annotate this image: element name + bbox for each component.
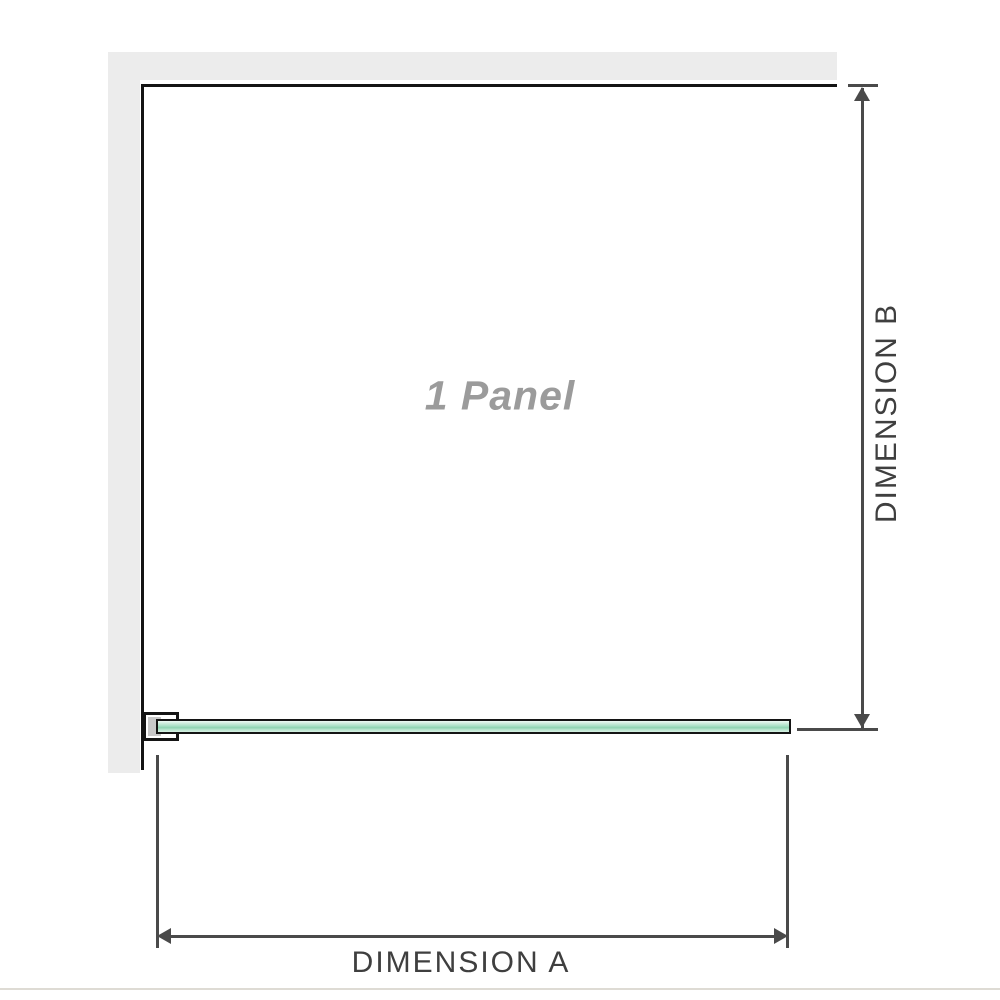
dimension-a-label: DIMENSION A <box>352 946 571 980</box>
glass-panel-top-view <box>156 719 791 734</box>
dimension-a-extension-left <box>156 755 159 948</box>
diagram-canvas: 1 Panel DIMENSION B DIMENSION A <box>0 0 1000 1000</box>
arrowhead-up-icon <box>854 87 870 101</box>
panel-top-edge <box>141 84 837 87</box>
dimension-b-tick-bottom <box>797 728 878 731</box>
dimension-a-arrow-line <box>162 935 782 938</box>
dimension-b-arrow-line <box>861 88 864 728</box>
image-bottom-border <box>0 988 1000 990</box>
wall-top <box>108 52 837 80</box>
arrowhead-left-icon <box>157 928 171 944</box>
arrowhead-down-icon <box>854 714 870 728</box>
panel-count-label: 1 Panel <box>425 373 576 420</box>
arrowhead-right-icon <box>774 928 788 944</box>
dimension-a-extension-right <box>786 755 789 948</box>
wall-left <box>108 52 140 773</box>
panel-left-edge <box>141 84 144 770</box>
dimension-b-label: DIMENSION B <box>870 303 904 523</box>
